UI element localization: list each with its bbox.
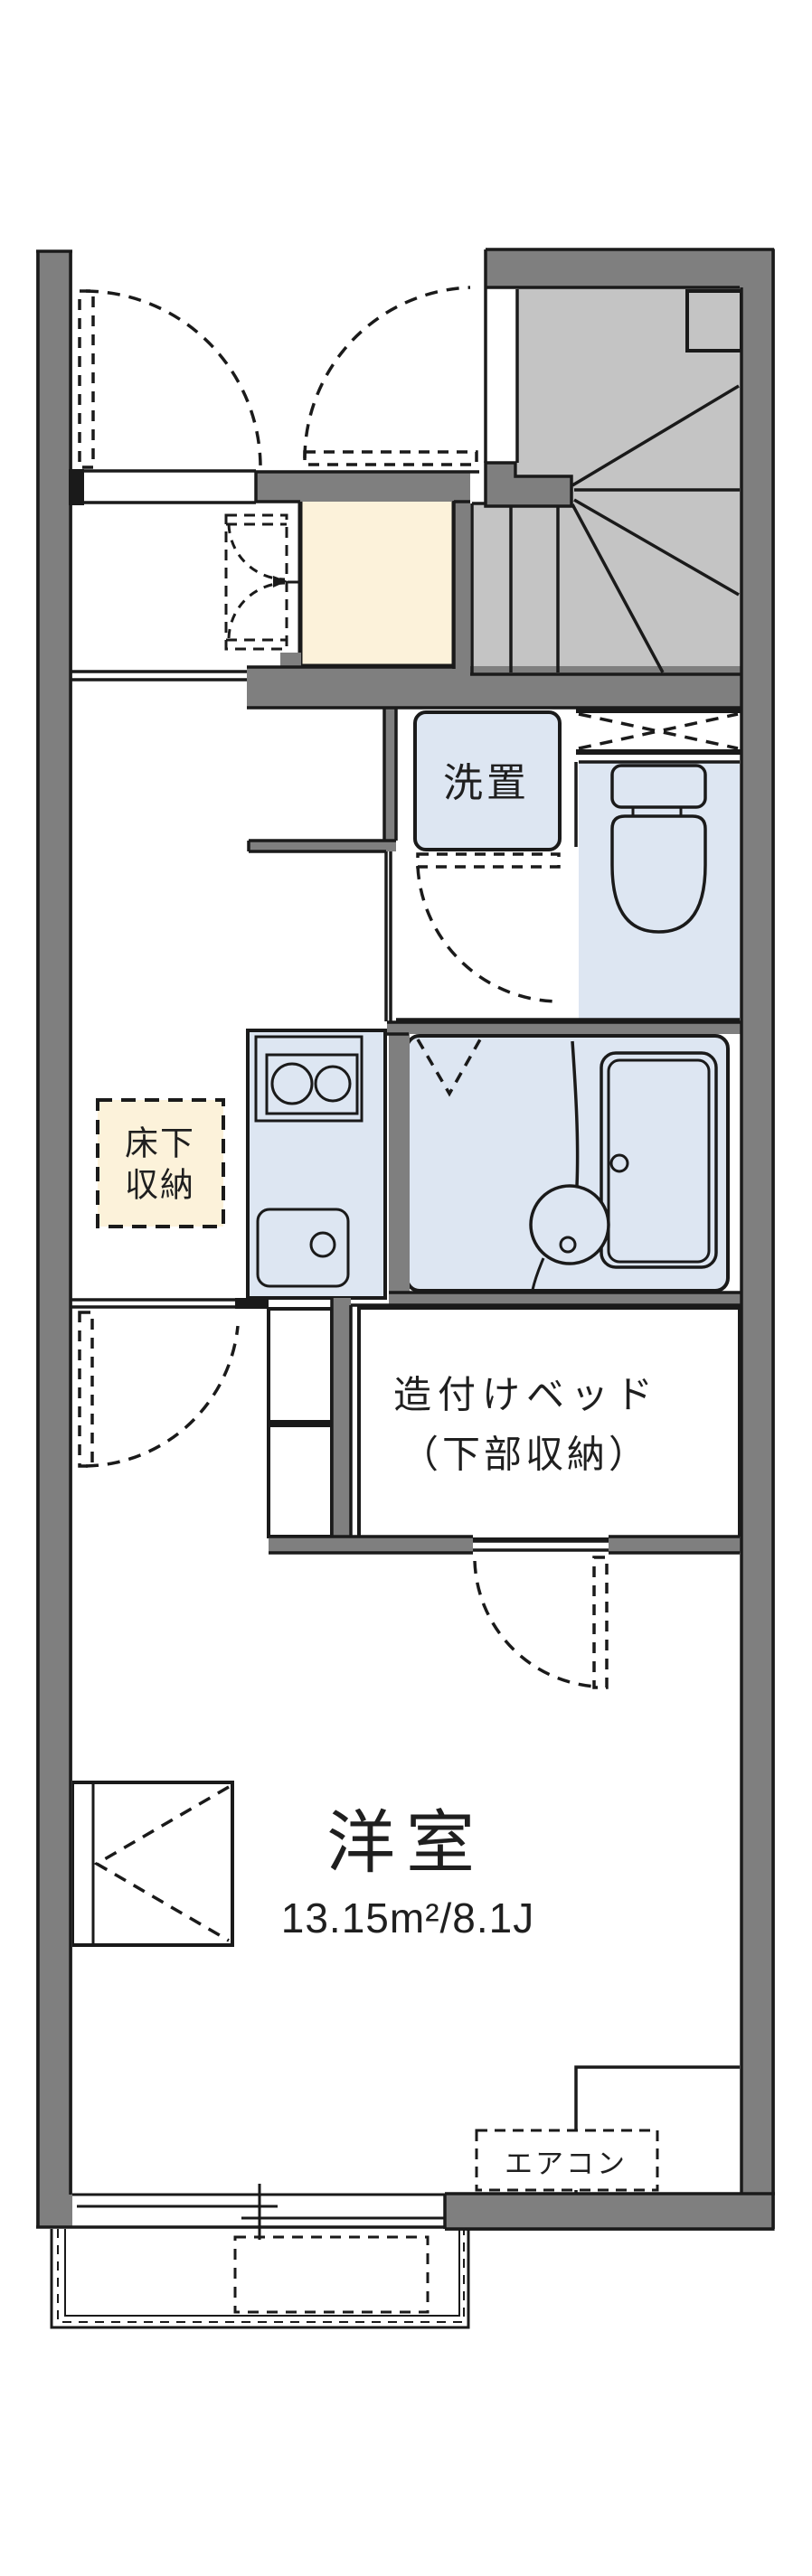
bathroom-unit [407, 1036, 728, 1291]
toilet-fixture [612, 766, 705, 932]
bay-window-unit [72, 1782, 232, 1945]
wall-left-outer [36, 250, 72, 2228]
wall-room-top-seg [235, 1298, 269, 1309]
aircon-label: エアコン [505, 2141, 628, 2182]
wall-bed-bottom-left [269, 1537, 473, 1553]
wall-bed-bottom-right [609, 1537, 741, 1553]
wall-washroom-bath [387, 1022, 741, 1034]
wall-bottom-right [445, 2194, 775, 2231]
wall-bed-left [332, 1298, 351, 1539]
floorplan-canvas: 洗置 床下 収納 造付けベッド （下部収納） 洋室 13.15m²/8.1J エ… [0, 0, 812, 2576]
underfloor-label-line2: 収納 [125, 1164, 195, 1205]
room-name-label: 洋室 [326, 1787, 486, 1886]
cabinet-top-bar [576, 708, 741, 713]
storage-box-lower [269, 1425, 332, 1537]
wall-kitchen-bath [389, 1034, 410, 1295]
floorplan-drawing [0, 0, 812, 2576]
kitchen-counter [248, 1030, 385, 1298]
wall-right-outer [741, 249, 775, 2231]
wall-hall-kitchen [249, 841, 396, 851]
wall-under-entry [247, 666, 741, 708]
underfloor-label-line1: 床下 [125, 1123, 195, 1163]
wall-entry-top [256, 472, 470, 502]
kitchen-unit [248, 1030, 385, 1298]
wall-stair-top [486, 249, 775, 287]
cabinet-bottom-bar [576, 749, 741, 755]
room-size-label: 13.15m²/8.1J [281, 1894, 534, 1942]
toilet-bowl-icon [612, 816, 705, 932]
storage-box-upper [269, 1309, 332, 1422]
bed-label-line1: 造付けベッド [393, 1365, 659, 1420]
wall-bath-bottom [389, 1293, 741, 1305]
bed-label-line2: （下部収納） [401, 1424, 650, 1480]
wall-hall-washer [384, 708, 396, 851]
laundry-label: 洗置 [443, 750, 530, 808]
wall-entry-stair [454, 501, 470, 674]
stair-landing [687, 291, 741, 351]
wall-entry-tab [280, 653, 301, 666]
toilet-tank-icon [612, 766, 705, 807]
entry-area [300, 499, 454, 666]
